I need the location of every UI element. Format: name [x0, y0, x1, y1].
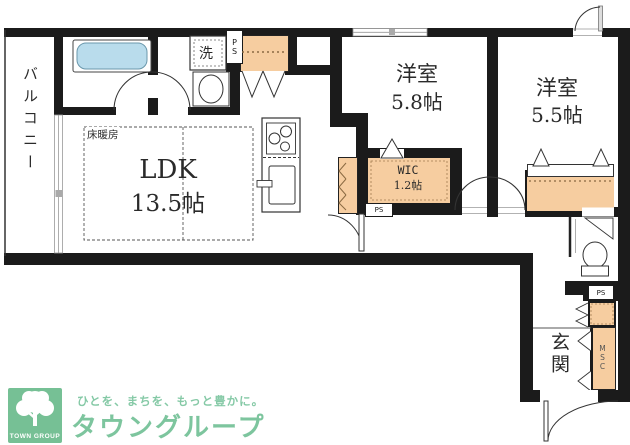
logo-brand: タウングループ — [71, 407, 265, 444]
ps-label-wic: PS — [375, 206, 384, 214]
bedroom1-area: 5.8帖 — [367, 86, 467, 115]
floor-heating-label: 床暖房 — [86, 127, 120, 142]
msc-label: MSC — [598, 344, 607, 371]
toilet-room — [570, 208, 614, 277]
washroom-closet — [240, 35, 289, 72]
town-group-logo-square: TOWN GROUP — [8, 388, 62, 443]
kitchen-unit — [257, 118, 300, 212]
balcony-label: バルコニー — [20, 66, 41, 176]
bathtub — [73, 40, 151, 72]
entrance-label: 玄関 — [546, 332, 573, 376]
wall-balcony-bath-divider — [54, 37, 63, 115]
vanity-sink — [193, 72, 229, 106]
closet55-top-band — [527, 164, 614, 177]
wall-bath-wash-divider — [148, 37, 158, 75]
tree-icon — [8, 388, 62, 430]
wall-bedroom-divider — [487, 37, 498, 217]
wall-entrance-bottom-right — [598, 390, 630, 402]
ps-box-toilet: PS — [588, 285, 614, 300]
ldk-name: LDK — [118, 155, 218, 185]
wall-wash-bottom-right — [188, 107, 235, 115]
ps-label-toilet: PS — [597, 289, 606, 297]
ps-shaft-top: PS — [226, 30, 243, 64]
wall-washroom-right — [230, 65, 240, 115]
wall-ldk-east-jog — [330, 113, 368, 127]
wall-bottom-main — [4, 253, 533, 265]
ldk-storage-strip — [338, 157, 358, 214]
toilet-bowl — [583, 242, 607, 268]
closet55 — [527, 177, 614, 211]
ps-label-top: PS — [230, 38, 239, 56]
floor-plan-page: PS — [0, 0, 630, 445]
ldk-balcony-window — [55, 115, 63, 253]
hall-mini-closet — [588, 301, 616, 327]
toilet-door — [585, 218, 613, 239]
wall-corridor-left — [520, 253, 533, 402]
wall-right — [618, 28, 630, 402]
town-group-text: TOWN GROUP — [8, 433, 62, 440]
ldk-hall-door — [328, 214, 364, 251]
wall-top — [4, 28, 630, 37]
bedroom2-area: 5.5帖 — [507, 99, 607, 128]
wall-entrance-bottom-left — [520, 390, 544, 402]
ps-box-wic: PS — [365, 203, 393, 217]
laundry-label: 洗 — [199, 43, 213, 63]
wic-area: 1.2帖 — [379, 177, 437, 193]
wall-bath-door-stub — [148, 98, 158, 115]
bedroom2-name: 洋室 — [507, 72, 607, 102]
washroom-closet-doors — [242, 71, 285, 97]
toilet-tank — [582, 266, 609, 276]
ldk-area: 13.5帖 — [113, 184, 223, 218]
bedroom1-name: 洋室 — [367, 58, 467, 88]
wall-bath-bottom-left — [54, 107, 116, 115]
mini-closet-doors — [576, 303, 588, 327]
wic-name: WIC — [379, 163, 437, 177]
